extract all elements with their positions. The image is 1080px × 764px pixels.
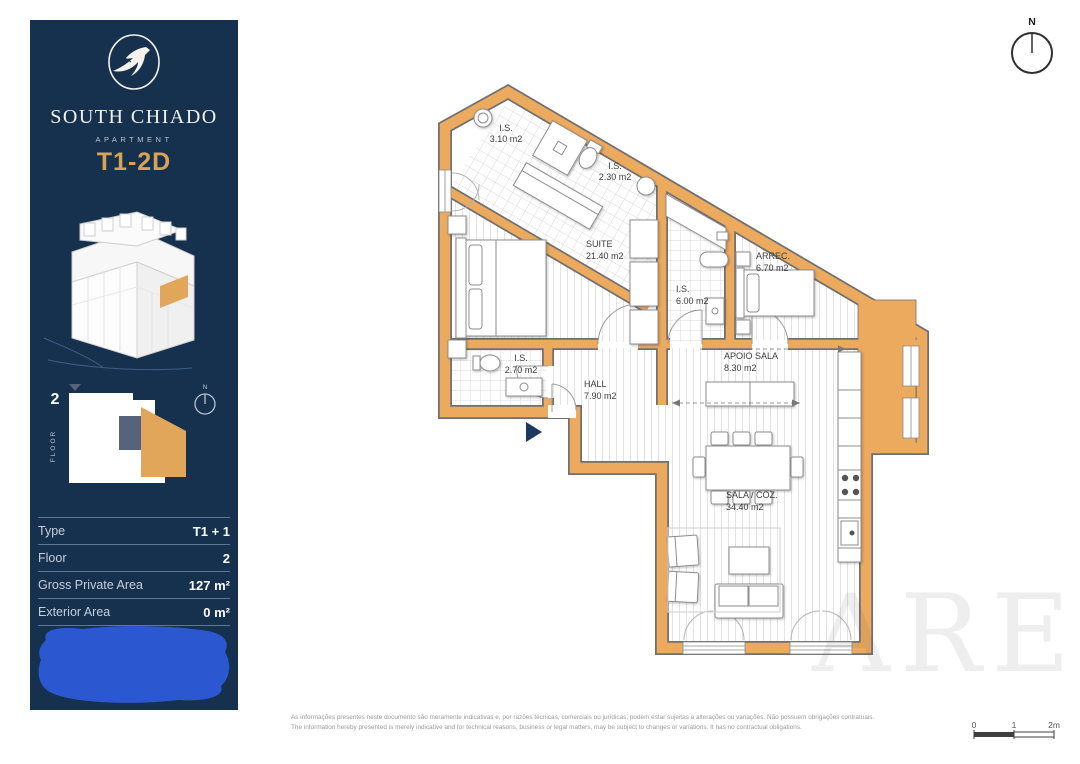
swallow-icon [113, 47, 150, 76]
bed-headboard [736, 268, 744, 318]
spec-label: Type [38, 524, 65, 538]
spec-value: 2 [223, 551, 230, 566]
scale-two: 2m [1048, 720, 1060, 730]
room-area: 3.10 m2 [490, 134, 523, 144]
chair [733, 432, 750, 445]
room-name: ARREC. [756, 251, 790, 261]
brand-subtitle: APARTMENT [30, 135, 238, 144]
armchair [667, 535, 699, 567]
floor-key-north-label: N [203, 384, 208, 391]
bed-headboard [456, 238, 466, 338]
brochure-page: { "sidebar": { "brand": "SOUTH CHIADO", … [0, 0, 1080, 764]
floor-key-map [69, 393, 186, 483]
floor-label: FLOOR [50, 430, 57, 462]
spec-row-type: Type T1 + 1 [38, 518, 230, 545]
spec-value: T1 + 1 [193, 524, 230, 539]
chair [711, 432, 728, 445]
room-area: 8.30 m2 [724, 363, 757, 373]
sink-basin [712, 308, 718, 314]
room-area: 6.00 m2 [676, 296, 709, 306]
wardrobe [630, 310, 658, 344]
sink [637, 177, 655, 195]
north-indicator: N [1000, 12, 1064, 84]
room-name: SALA / COZ. [726, 490, 778, 500]
room-name: I.S. [499, 123, 513, 133]
toilet [473, 355, 500, 371]
redaction-scribble [28, 622, 240, 712]
room-area: 2.30 m2 [599, 172, 632, 182]
room-name: APOIO SALA [724, 351, 778, 361]
floor-key-north-icon: N [195, 384, 215, 414]
sofa-cushion [749, 586, 778, 606]
brand-title: SOUTH CHIADO [30, 106, 238, 129]
scale-one: 1 [1012, 720, 1017, 730]
pillow [469, 245, 482, 285]
spec-label: Exterior Area [38, 605, 110, 619]
fixture [717, 232, 728, 240]
floor-plan: I.S. 3.10 m2 I.S. 2.30 m2 SUITE 21.40 m2… [428, 70, 958, 670]
spec-value: 127 m² [189, 578, 230, 593]
coffee-table [729, 547, 769, 574]
bathtub [700, 252, 728, 267]
spec-table: Type T1 + 1 Floor 2 Gross Private Area 1… [38, 517, 230, 626]
room-area: 34.40 m2 [726, 502, 764, 512]
nightstand [736, 252, 750, 266]
room-name: I.S. [514, 353, 528, 363]
chair [693, 457, 705, 477]
room-name: SUITE [586, 239, 613, 249]
sink-basin [478, 113, 488, 123]
unit-marker-icon [69, 384, 81, 391]
nightstand [448, 340, 466, 358]
armchair [667, 571, 699, 603]
room-area: 2.70 m2 [505, 365, 538, 375]
chair [791, 457, 803, 477]
spec-row-floor: Floor 2 [38, 545, 230, 572]
brand-logo [104, 32, 164, 92]
disclaimer-en: The information hereby presented is mere… [291, 723, 981, 733]
chair [755, 432, 772, 445]
spec-label: Gross Private Area [38, 578, 143, 592]
disclaimer: As informações presentes neste documento… [291, 713, 981, 732]
pillow [469, 289, 482, 329]
room-name: I.S. [676, 284, 690, 294]
room-area: 6.70 m2 [756, 263, 789, 273]
floor-number: 2 [51, 391, 60, 408]
wardrobe [630, 220, 658, 258]
spec-row-gross-area: Gross Private Area 127 m² [38, 572, 230, 599]
sink-basin [520, 383, 528, 391]
spec-value: 0 m² [203, 605, 230, 620]
dining-table [706, 446, 790, 490]
sidebar-panel: SOUTH CHIADO APARTMENT T1-2D 2 FL [30, 20, 238, 710]
scale-segment-solid [974, 732, 1014, 737]
north-icon [1012, 33, 1052, 73]
unit-code: T1-2D [30, 148, 238, 177]
nightstand [448, 216, 466, 234]
pillow [747, 274, 759, 312]
room-area: 21.40 m2 [586, 251, 624, 261]
spec-label: Floor [38, 551, 66, 565]
scale-segment-open [1014, 732, 1054, 737]
room-area: 7.90 m2 [584, 391, 617, 401]
disclaimer-pt: As informações presentes neste documento… [291, 713, 981, 723]
wardrobe [630, 262, 658, 306]
north-label: N [1028, 16, 1036, 28]
building-illustration [42, 190, 227, 375]
entrance-arrow-icon [526, 422, 542, 442]
nightstand [736, 320, 750, 334]
sofa-cushion [719, 586, 748, 606]
room-name: HALL [584, 379, 607, 389]
room-name: I.S. [608, 161, 622, 171]
floor-key: 2 FLOOR N [40, 376, 235, 494]
